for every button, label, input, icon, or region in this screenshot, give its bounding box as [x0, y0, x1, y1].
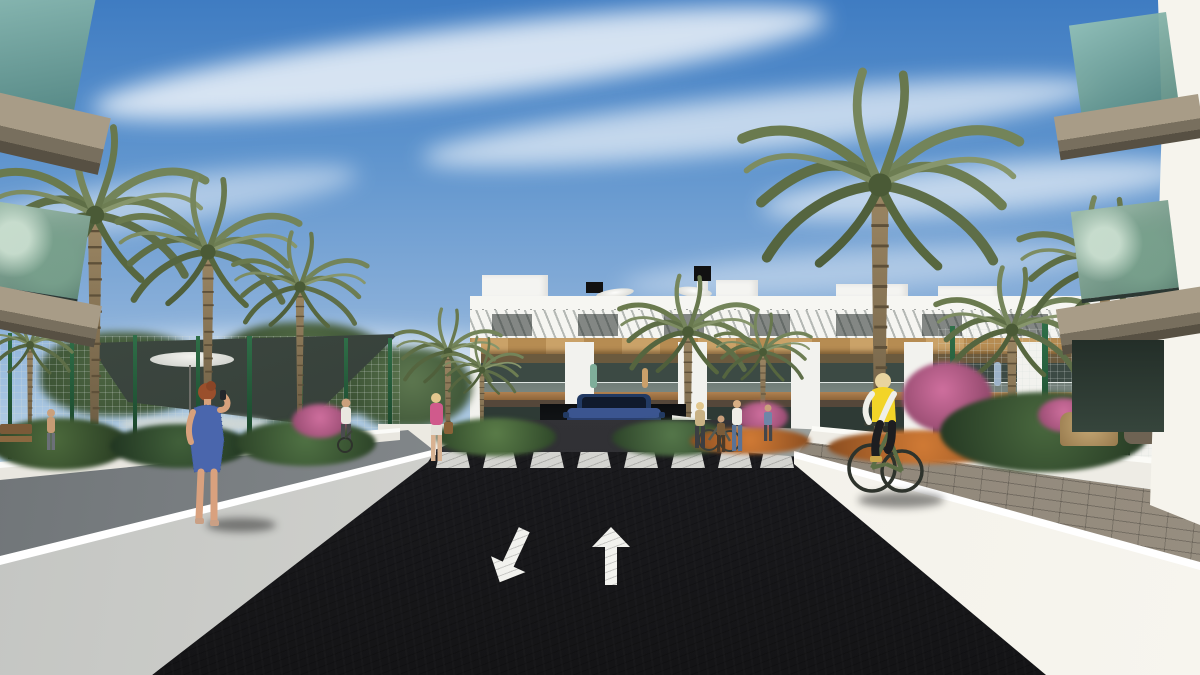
foreground-left-balcony-lower [0, 196, 96, 336]
person-with-bicycle-white-shirt [332, 398, 362, 454]
woman-blue-dress-on-phone [180, 380, 236, 530]
cyclist-yellow-vest [836, 372, 932, 506]
garden-bench [0, 424, 32, 450]
lane-arrow-up [592, 527, 630, 585]
pedestrian-group-with-bicycle [684, 398, 784, 460]
shirtless-man [42, 408, 60, 452]
balcony-glass [0, 200, 91, 303]
foreground-right-balcony-upper [1048, 0, 1200, 160]
crosswalk-stripe [577, 450, 611, 468]
foreground-right-balcony-lower [1052, 190, 1200, 350]
woman-pink-jacket [420, 392, 454, 466]
architectural-render-scene [0, 0, 1200, 675]
crosswalk-stripe [530, 450, 564, 468]
foreground-right-terrace [1072, 340, 1164, 432]
balcony-glass [1071, 200, 1179, 303]
bush [436, 418, 556, 456]
foreground-left-balcony-upper [0, 0, 100, 210]
lane-arrow-down-left [483, 522, 542, 591]
